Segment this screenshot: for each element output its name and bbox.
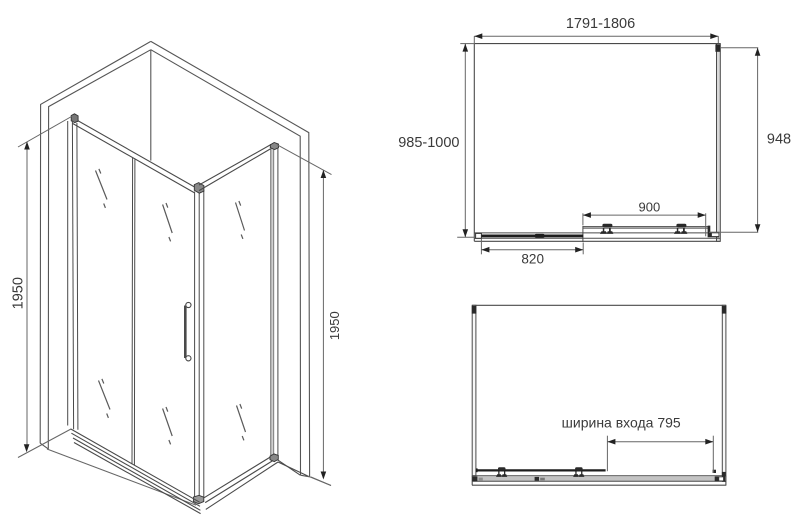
svg-text:900: 900	[639, 200, 661, 215]
svg-text:820: 820	[521, 252, 544, 267]
svg-text:1950: 1950	[11, 277, 27, 309]
svg-text:948: 948	[767, 132, 791, 148]
svg-text:1791-1806: 1791-1806	[566, 16, 635, 32]
svg-text:1950: 1950	[327, 311, 342, 340]
svg-text:ширина входа 795: ширина входа 795	[562, 415, 681, 431]
svg-text:985-1000: 985-1000	[398, 135, 459, 151]
